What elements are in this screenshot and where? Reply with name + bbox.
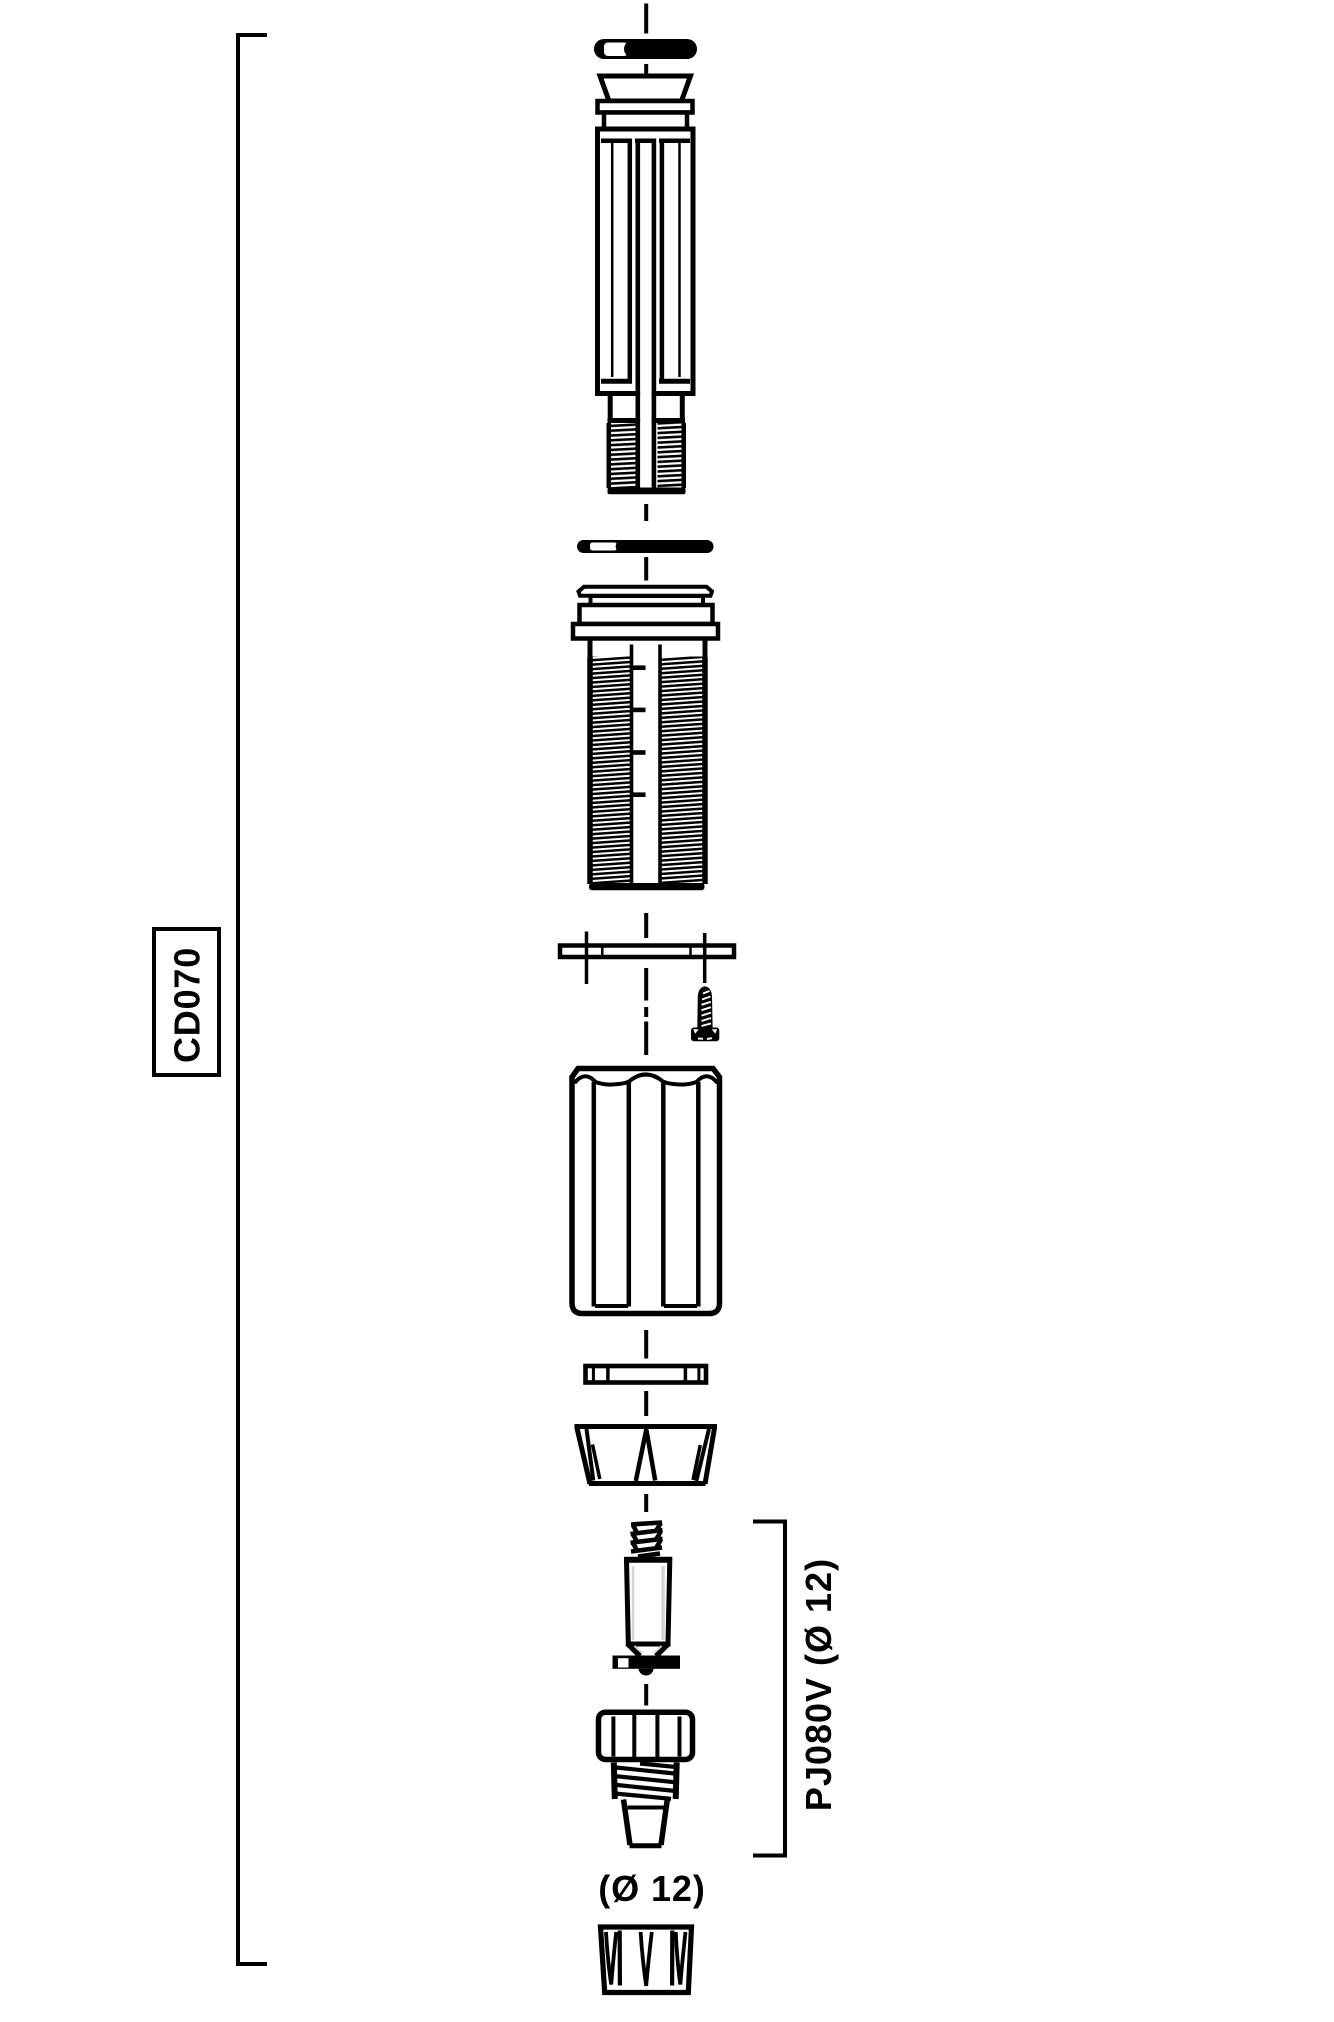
svg-text:(Ø 12): (Ø 12) <box>598 1868 705 1909</box>
svg-text:CD070: CD070 <box>167 947 208 1063</box>
svg-text:PJ080V (Ø 12): PJ080V (Ø 12) <box>798 1558 839 1811</box>
